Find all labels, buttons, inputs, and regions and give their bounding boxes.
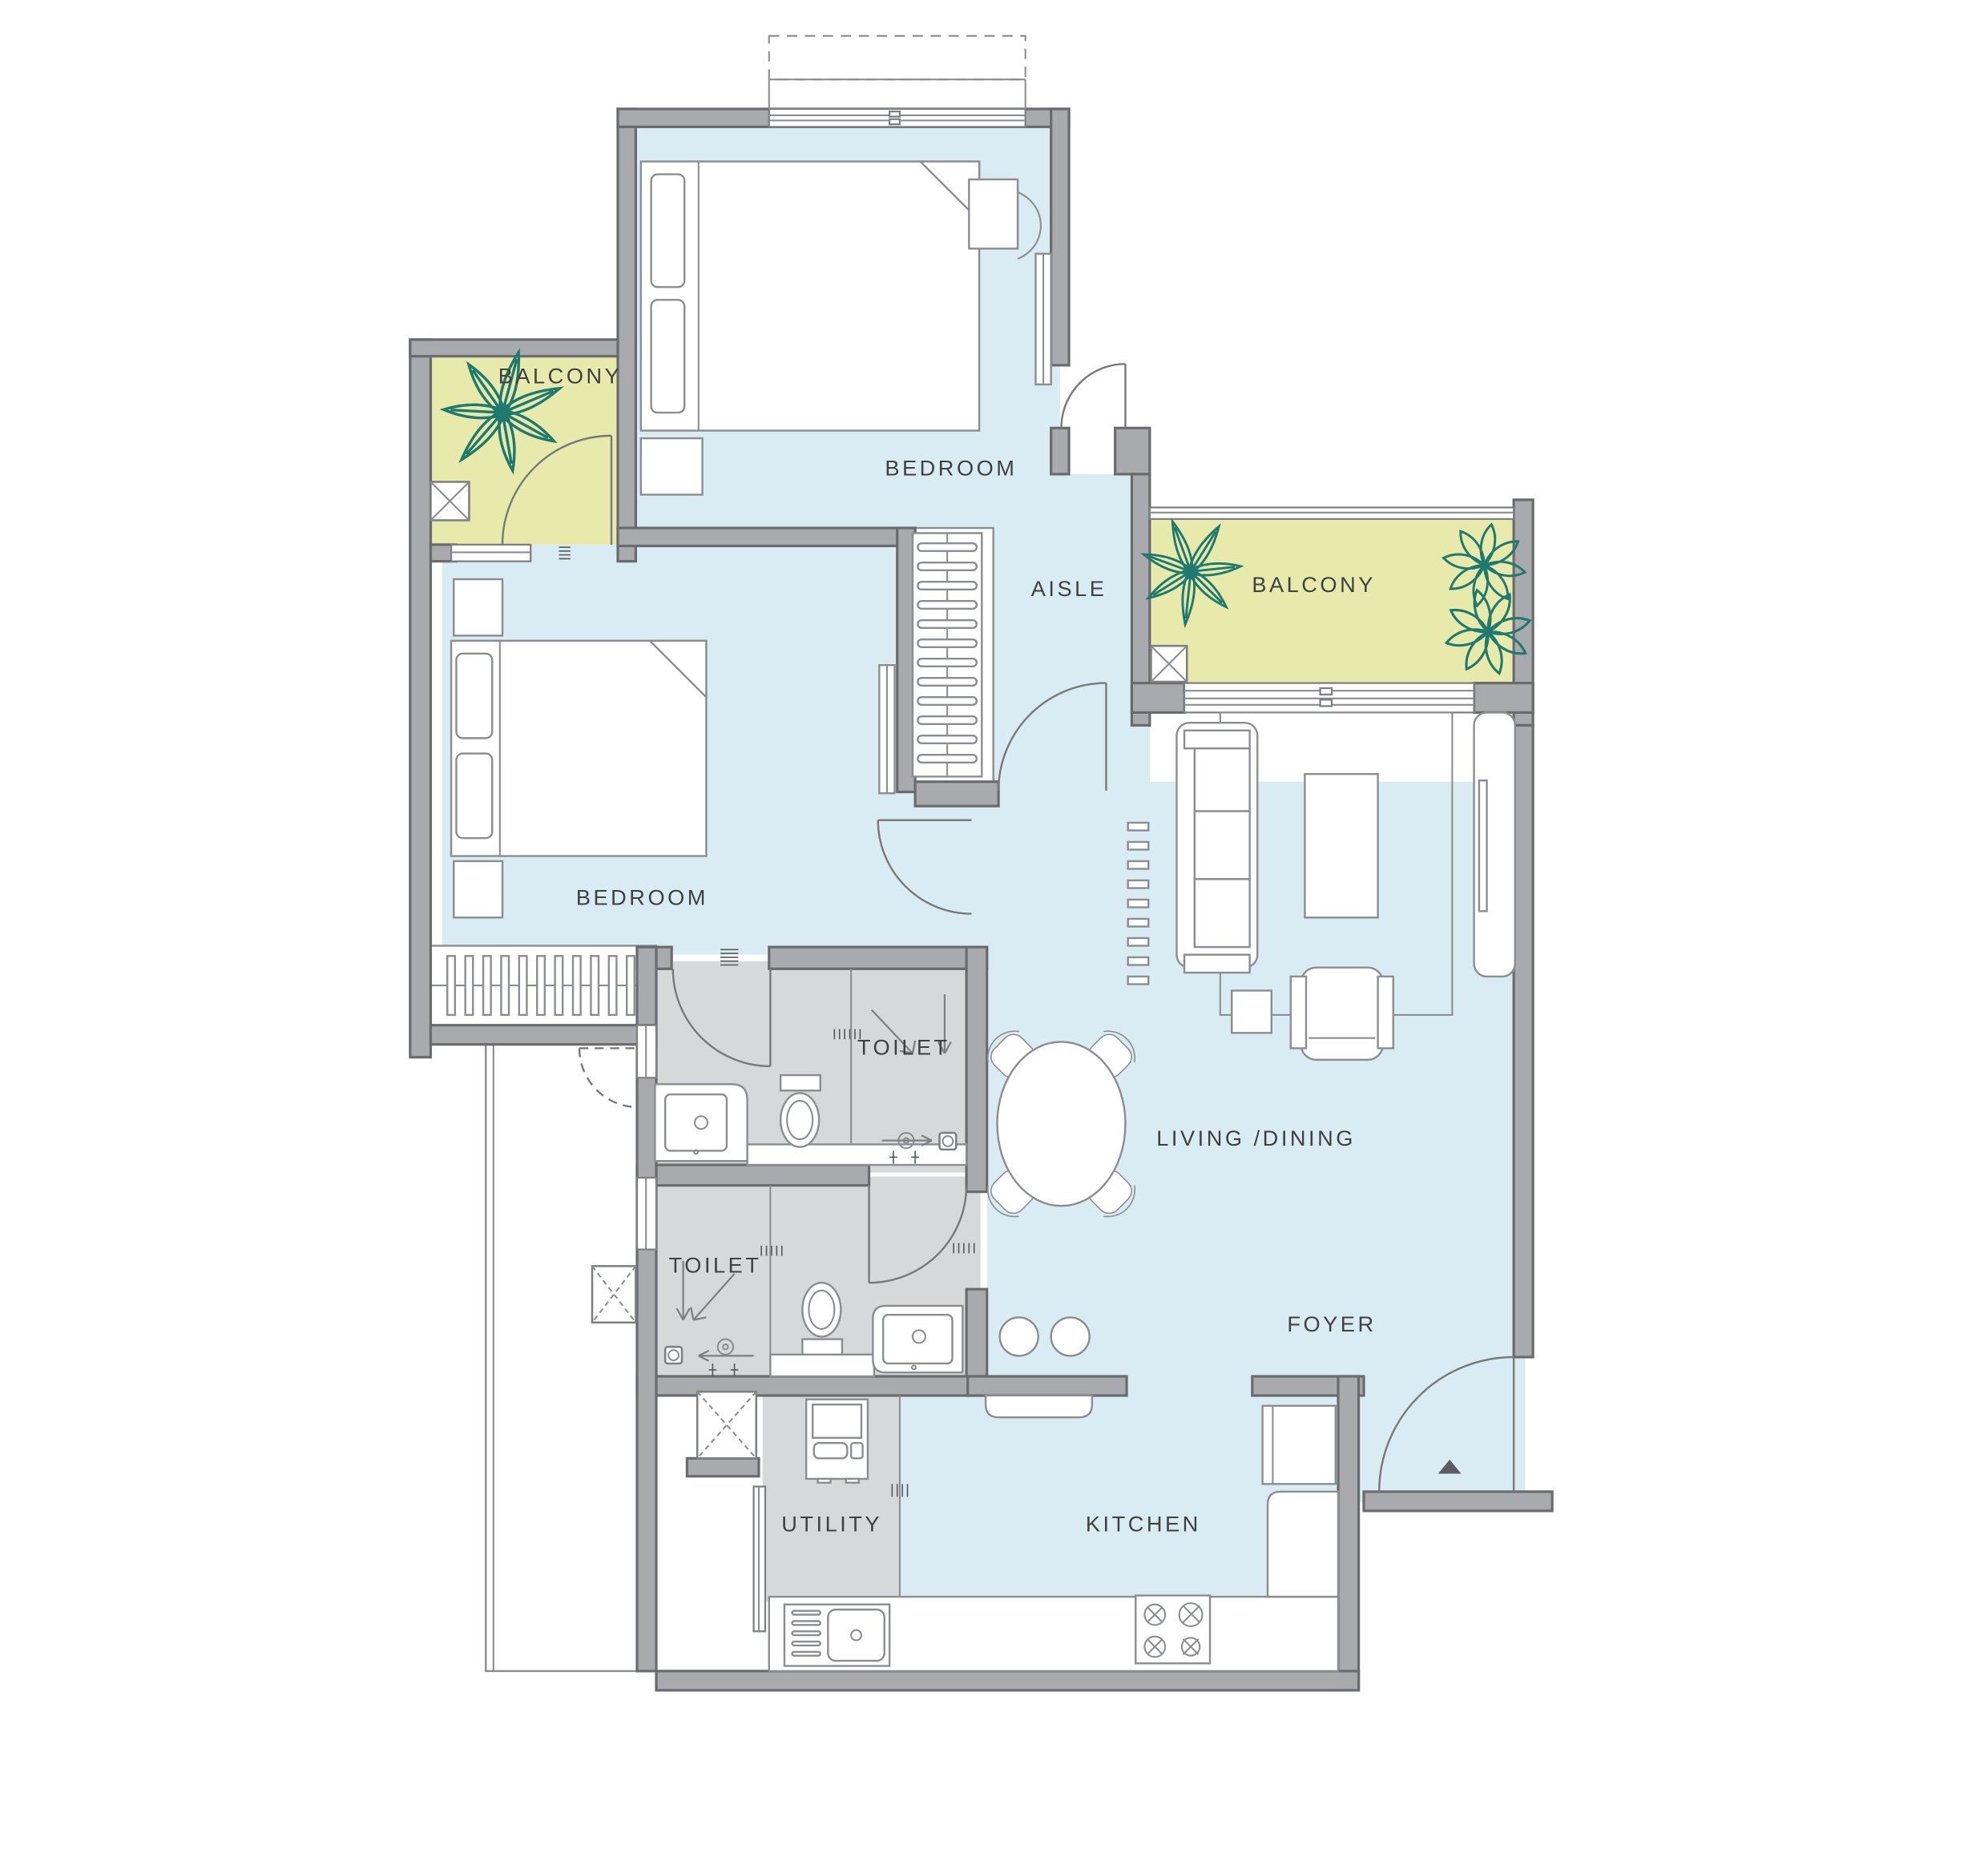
shaft-x-icon — [592, 1266, 635, 1322]
vanity-counter — [770, 1355, 874, 1376]
tv — [1479, 780, 1487, 911]
dining-set — [980, 1024, 1142, 1224]
nightstand — [454, 861, 502, 917]
dining-table — [997, 1041, 1125, 1206]
balcony-right-label: BALCONY — [1252, 572, 1376, 597]
toilet-lower-label: TOILET — [669, 1252, 762, 1277]
utility-window — [754, 1487, 765, 1632]
bed-top-bedroom — [641, 162, 979, 431]
wardrobe — [1035, 254, 1050, 385]
shaft-x-icon — [697, 1392, 756, 1458]
toilet-upper-label: TOILET — [857, 1034, 950, 1059]
stool — [1000, 1317, 1038, 1356]
wash-basin — [873, 1306, 962, 1372]
shaft-x-icon — [430, 481, 469, 520]
utility-label: UTILITY — [781, 1512, 882, 1537]
bedroom-top-window — [769, 36, 1026, 127]
wash-basin — [655, 1084, 747, 1161]
balcony-left-label: BALCONY — [498, 363, 623, 388]
stool — [1051, 1317, 1090, 1356]
partition-ticks — [1128, 823, 1149, 985]
fridge — [1263, 1406, 1336, 1484]
wardrobe-shelves — [913, 533, 982, 776]
balcony-right-glazing — [1184, 683, 1474, 713]
vanity-counter — [748, 1144, 967, 1165]
shaft-x-icon — [1151, 646, 1187, 682]
coffee-table — [1304, 774, 1377, 917]
wc — [802, 1283, 842, 1355]
aisle-label: AISLE — [1031, 576, 1107, 601]
open-ledge — [486, 1045, 637, 1671]
bedroom-left-label: BEDROOM — [576, 884, 708, 909]
wc — [780, 1075, 821, 1147]
armchair — [1291, 968, 1393, 1060]
nightstand — [454, 579, 502, 635]
bed-left-bedroom — [451, 641, 706, 856]
washing-machine — [806, 1400, 868, 1483]
wardrobe — [879, 665, 894, 793]
tv-console — [1474, 712, 1515, 977]
hob — [1135, 1596, 1210, 1664]
bedroom-top-label: BEDROOM — [885, 455, 1017, 480]
floor-plan: BALCONY BEDROOM AISLE BALCONY BEDROOM TO… — [0, 0, 1988, 1848]
kitchen-sink — [784, 1605, 889, 1666]
nightstand — [641, 438, 703, 494]
kitchen-label: KITCHEN — [1086, 1512, 1201, 1537]
balcony-left-window — [451, 545, 530, 562]
foyer-label: FOYER — [1287, 1311, 1376, 1336]
bedroom-top-door — [1061, 364, 1125, 428]
balcony-right-railing — [1150, 507, 1514, 518]
projection-dashed-box — [769, 36, 1026, 79]
sofa — [1176, 723, 1257, 973]
side-table — [1232, 991, 1272, 1033]
floor-plan-page: BALCONY BEDROOM AISLE BALCONY BEDROOM TO… — [0, 0, 1988, 1848]
living-dining-label: LIVING /DINING — [1156, 1126, 1356, 1150]
